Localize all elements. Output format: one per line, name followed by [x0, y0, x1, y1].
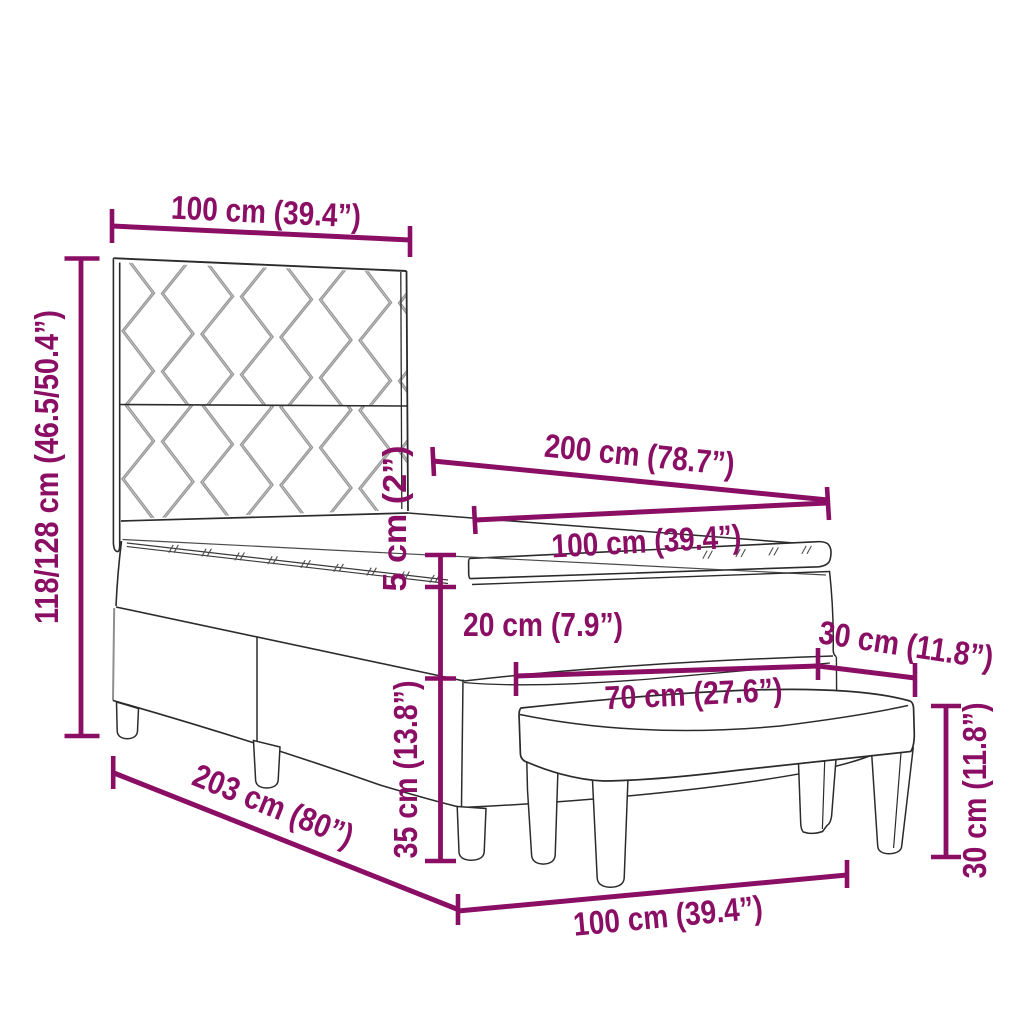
svg-text:118/128 cm (46.5/50.4”): 118/128 cm (46.5/50.4”): [28, 310, 65, 624]
svg-text:20 cm (7.9”): 20 cm (7.9”): [463, 606, 623, 643]
svg-text:30 cm (11.8”): 30 cm (11.8”): [956, 703, 993, 879]
svg-text:35 cm (13.8”): 35 cm (13.8”): [387, 681, 424, 859]
svg-text:5 cm (2”): 5 cm (2”): [376, 446, 413, 592]
